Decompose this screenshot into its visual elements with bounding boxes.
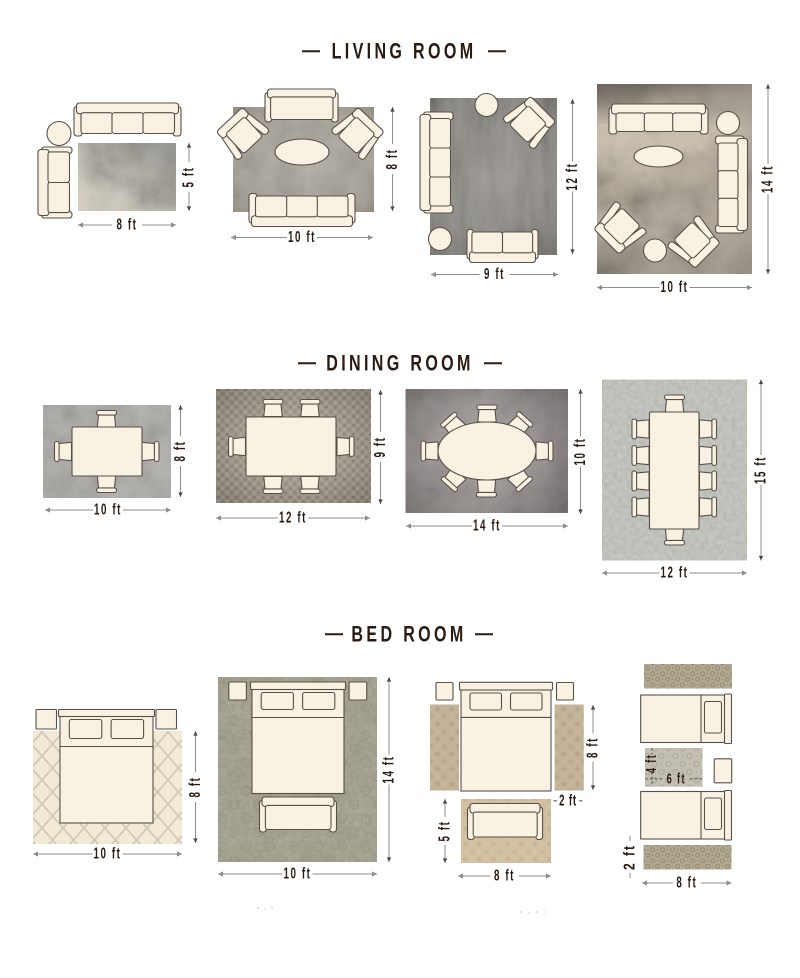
svg-text:5 ft: 5 ft [179, 167, 197, 188]
svg-text:10 ft: 10 ft [284, 864, 312, 882]
svg-text:8 ft: 8 ft [494, 866, 515, 884]
svg-text:12 ft: 12 ft [563, 163, 581, 191]
svg-text:8 ft: 8 ft [171, 441, 189, 462]
svg-text:10 ft: 10 ft [94, 844, 122, 862]
svg-text:10 ft: 10 ft [571, 438, 589, 466]
svg-text:8 ft: 8 ft [583, 737, 601, 758]
svg-text:2 ft: 2 ft [620, 844, 638, 870]
svg-text:8 ft: 8 ft [117, 215, 138, 233]
svg-text:10 ft: 10 ft [661, 278, 689, 296]
svg-text:15 ft: 15 ft [751, 456, 769, 484]
svg-text:8 ft: 8 ft [383, 149, 401, 170]
svg-text:DINING ROOM: DINING ROOM [326, 352, 474, 376]
svg-text:BED ROOM: BED ROOM [351, 623, 466, 647]
svg-text:8 ft: 8 ft [676, 873, 697, 891]
svg-text:14 ft: 14 ft [473, 516, 501, 534]
svg-text:5 ft: 5 ft [435, 821, 453, 842]
svg-text:14 ft: 14 ft [758, 165, 776, 193]
svg-text:9 ft: 9 ft [484, 265, 505, 283]
svg-text:6 ft: 6 ft [667, 770, 686, 787]
svg-text:10 ft: 10 ft [94, 500, 122, 518]
svg-text:LIVING ROOM: LIVING ROOM [332, 40, 477, 64]
svg-text:12 ft: 12 ft [661, 563, 689, 581]
svg-text:9 ft: 9 ft [371, 437, 389, 458]
svg-text:2 ft: 2 ft [559, 791, 577, 809]
svg-text:12 ft: 12 ft [279, 508, 307, 526]
svg-text:8 ft: 8 ft [186, 777, 204, 798]
svg-text:10 ft: 10 ft [288, 228, 316, 246]
svg-text:14 ft: 14 ft [379, 756, 397, 784]
svg-text:4 ft: 4 ft [643, 754, 660, 773]
